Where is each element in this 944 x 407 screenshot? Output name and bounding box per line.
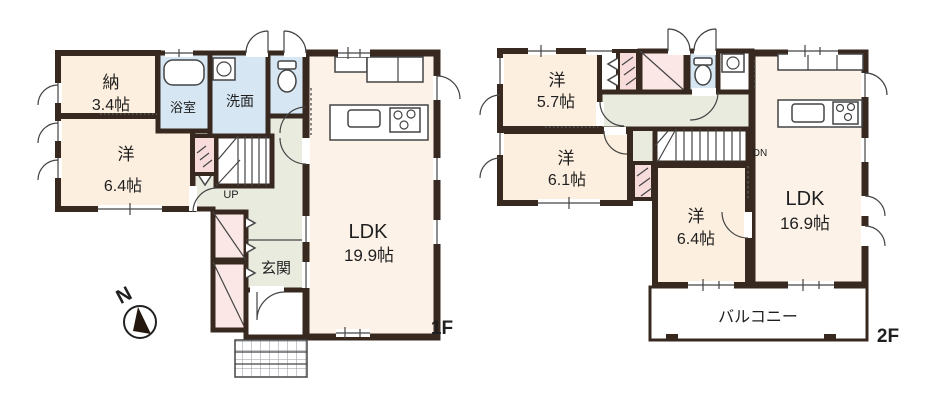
exterior-door-top-b — [284, 31, 306, 57]
label-western1f-size: 6.4帖 — [104, 177, 142, 195]
label-washroom: 洗面 — [226, 93, 254, 109]
label-floor-2f: 2F — [877, 326, 899, 347]
label-storage-name: 納 — [103, 73, 120, 92]
stove-2f — [833, 102, 858, 124]
floor-2f: 洋 5.7帖 洋 6.1帖 洋 6.4帖 LDK 16.9帖 DN バルコニー … — [480, 29, 899, 347]
room-ldk-2f — [752, 53, 865, 285]
door-ldk-right — [433, 76, 460, 100]
windows-left-1f — [38, 83, 62, 180]
room-western57-2f — [500, 51, 600, 129]
label-balcony: バルコニー — [718, 309, 798, 326]
label-western57-name: 洋 — [549, 71, 566, 90]
exterior-door-top-a — [246, 31, 268, 57]
label-western64-name: 洋 — [688, 207, 705, 226]
closet-front-2f — [600, 51, 618, 92]
label-ldk2f-size: 16.9帖 — [780, 214, 830, 233]
label-ldk2f-name: LDK — [786, 188, 826, 210]
label-floor-1f: 1F — [431, 318, 453, 339]
label-western57-size: 5.7帖 — [537, 93, 575, 111]
toilet-icon-2f — [694, 58, 712, 85]
window-bath-top — [165, 49, 193, 57]
closet-1f-lower — [213, 262, 246, 330]
label-ldk1f-size: 19.9帖 — [344, 246, 394, 265]
label-stairs-up: UP — [223, 189, 238, 201]
wash-basin-1f — [213, 58, 235, 80]
entrance-steps-1f — [235, 340, 307, 377]
closet-1f-upper — [213, 212, 246, 260]
toilet-icon-1f — [278, 61, 296, 92]
label-ldk1f-name: LDK — [349, 221, 389, 243]
porch-1f — [246, 290, 306, 337]
label-storage-size: 3.4帖 — [92, 96, 130, 114]
floorplan-image: 納 3.4帖 洋 6.4帖 浴室 洗面 LDK 19.9帖 玄関 UP 1F N — [0, 0, 944, 407]
vanity-area-2f — [718, 51, 752, 92]
front-door — [250, 286, 285, 320]
compass: N — [113, 283, 156, 338]
compass-label: N — [113, 283, 136, 309]
storage-triangle-2f — [640, 51, 686, 92]
stove-1f — [390, 108, 420, 132]
label-stairs-down: DN — [753, 148, 767, 159]
label-western61-name: 洋 — [558, 149, 575, 168]
label-entrance: 玄関 — [261, 260, 291, 277]
door-ldk2f-right — [861, 73, 887, 97]
hallway-2f — [600, 92, 752, 129]
stairs-down-2f — [655, 129, 748, 163]
room-ldk-1f — [306, 53, 437, 337]
label-western1f-name: 洋 — [118, 145, 135, 164]
kitchen-sink-2f — [792, 104, 824, 122]
label-western61-size: 6.1帖 — [548, 171, 586, 189]
floor-1f: 納 3.4帖 洋 6.4帖 浴室 洗面 LDK 19.9帖 玄関 UP 1F N — [38, 31, 460, 377]
label-western64-size: 6.4帖 — [677, 230, 715, 248]
stairs-up-1f — [216, 136, 272, 186]
floorplan-svg: 納 3.4帖 洋 6.4帖 浴室 洗面 LDK 19.9帖 玄関 UP 1F N — [0, 0, 944, 407]
bathtub-icon — [164, 60, 204, 85]
kitchen-sink-1f — [348, 110, 380, 127]
label-bath: 浴室 — [170, 100, 196, 115]
